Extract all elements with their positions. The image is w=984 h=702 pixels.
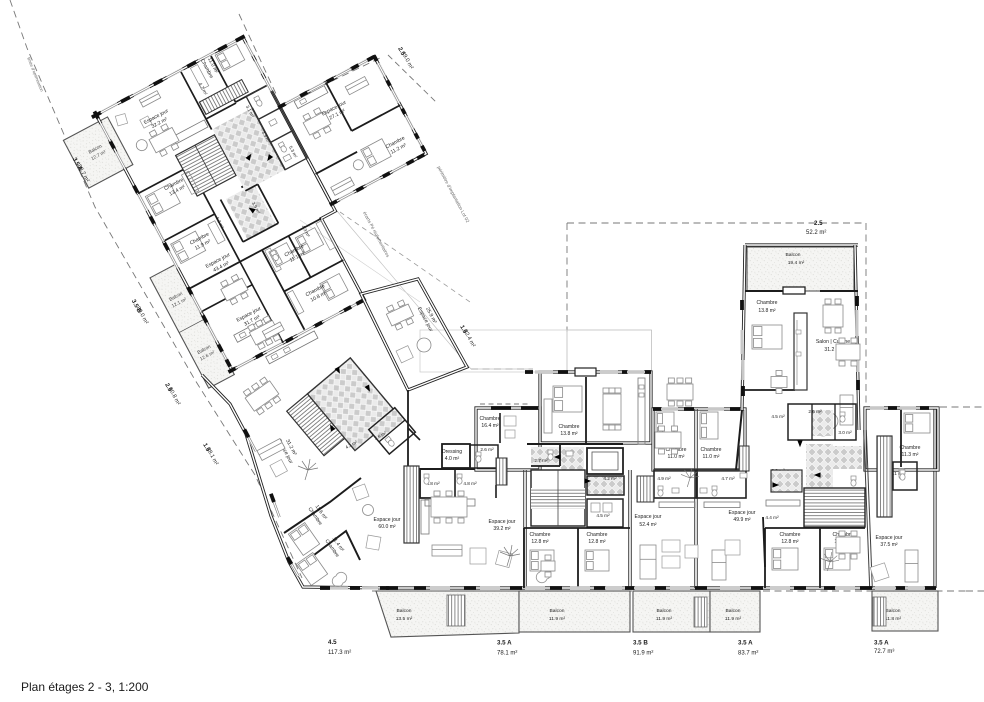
svg-text:Chambre: Chambre xyxy=(587,532,608,538)
svg-text:52.4 m²: 52.4 m² xyxy=(639,522,657,528)
svg-text:Balcon: Balcon xyxy=(786,252,801,258)
svg-text:11.3 m²: 11.3 m² xyxy=(902,452,919,458)
svg-text:2.7 m²: 2.7 m² xyxy=(534,458,548,463)
svg-text:117.3 m²: 117.3 m² xyxy=(328,650,351,656)
svg-text:Balcon: Balcon xyxy=(726,608,741,614)
svg-text:12.8 m²: 12.8 m² xyxy=(781,539,799,545)
svg-text:Chambre: Chambre xyxy=(780,532,801,538)
svg-text:Balcon: Balcon xyxy=(550,608,565,614)
svg-text:37.5 m²: 37.5 m² xyxy=(880,542,898,548)
svg-text:3.5 A: 3.5 A xyxy=(497,640,512,647)
svg-text:Espace jour: Espace jour xyxy=(374,517,401,523)
svg-text:78.1 m²: 78.1 m² xyxy=(497,651,517,657)
svg-text:Balcon: Balcon xyxy=(886,608,901,614)
svg-text:4.5: 4.5 xyxy=(328,639,337,646)
svg-text:12.8 m²: 12.8 m² xyxy=(588,539,606,545)
svg-text:Chambre: Chambre xyxy=(900,445,921,451)
svg-text:4.4 m²: 4.4 m² xyxy=(765,515,779,520)
svg-text:11.0 m²: 11.0 m² xyxy=(668,454,685,460)
svg-text:Espace jour: Espace jour xyxy=(489,519,516,525)
svg-text:4.2 m²: 4.2 m² xyxy=(603,476,617,481)
svg-text:11.9 m²: 11.9 m² xyxy=(656,616,673,622)
svg-text:Balcon: Balcon xyxy=(657,608,672,614)
svg-text:Espace jour: Espace jour xyxy=(729,510,756,516)
svg-text:4.0 m²: 4.0 m² xyxy=(445,456,460,462)
svg-text:Plan étages 2 - 3, 1:200: Plan étages 2 - 3, 1:200 xyxy=(21,680,149,694)
svg-text:52.2 m²: 52.2 m² xyxy=(806,230,826,236)
svg-text:4.9 m²: 4.9 m² xyxy=(657,476,671,481)
svg-text:39.2 m²: 39.2 m² xyxy=(493,526,511,532)
svg-text:11.9 m²: 11.9 m² xyxy=(549,616,566,622)
svg-text:4.5 m²: 4.5 m² xyxy=(596,513,610,518)
svg-text:2.6 m²: 2.6 m² xyxy=(480,447,494,452)
svg-text:Chambre: Chambre xyxy=(701,447,722,453)
svg-text:3.5 A: 3.5 A xyxy=(738,640,753,647)
svg-text:Chambre: Chambre xyxy=(530,532,551,538)
svg-text:3.5 B: 3.5 B xyxy=(633,640,648,647)
svg-text:Dressing: Dressing xyxy=(442,449,462,455)
svg-text:12.8 m²: 12.8 m² xyxy=(531,539,549,545)
svg-text:2.5: 2.5 xyxy=(814,220,823,227)
svg-text:13.8 m²: 13.8 m² xyxy=(758,308,776,314)
svg-text:Chambre: Chambre xyxy=(559,424,580,430)
svg-text:11.0 m²: 11.0 m² xyxy=(703,454,720,460)
svg-text:16.4 m²: 16.4 m² xyxy=(481,423,499,429)
svg-text:49.9 m²: 49.9 m² xyxy=(733,517,751,523)
svg-text:72.7 m³: 72.7 m³ xyxy=(874,649,894,655)
svg-text:4.5 m²: 4.5 m² xyxy=(771,414,785,419)
svg-text:19.4 m²: 19.4 m² xyxy=(788,260,805,266)
svg-text:83.7 m²: 83.7 m² xyxy=(738,651,758,657)
svg-text:Balcon: Balcon xyxy=(397,608,412,614)
svg-text:4.8 m²: 4.8 m² xyxy=(463,481,477,486)
svg-text:60.0 m²: 60.0 m² xyxy=(378,524,396,530)
svg-text:13.5 m²: 13.5 m² xyxy=(396,616,413,622)
svg-text:13.8 m²: 13.8 m² xyxy=(560,431,578,437)
svg-text:91.9 m²: 91.9 m² xyxy=(633,651,653,657)
svg-text:2.6 m²: 2.6 m² xyxy=(808,409,822,414)
svg-text:3.0 m²: 3.0 m² xyxy=(838,430,852,435)
svg-text:Chambre: Chambre xyxy=(480,416,501,422)
svg-text:3.5 A: 3.5 A xyxy=(874,640,889,647)
svg-text:11.8 m²: 11.8 m² xyxy=(885,616,902,622)
svg-text:Chambre: Chambre xyxy=(757,300,778,306)
svg-text:Espace jour: Espace jour xyxy=(635,514,662,520)
svg-text:11.9 m²: 11.9 m² xyxy=(725,616,742,622)
svg-text:4.7 m²: 4.7 m² xyxy=(721,476,735,481)
svg-text:Espace jour: Espace jour xyxy=(876,535,903,541)
